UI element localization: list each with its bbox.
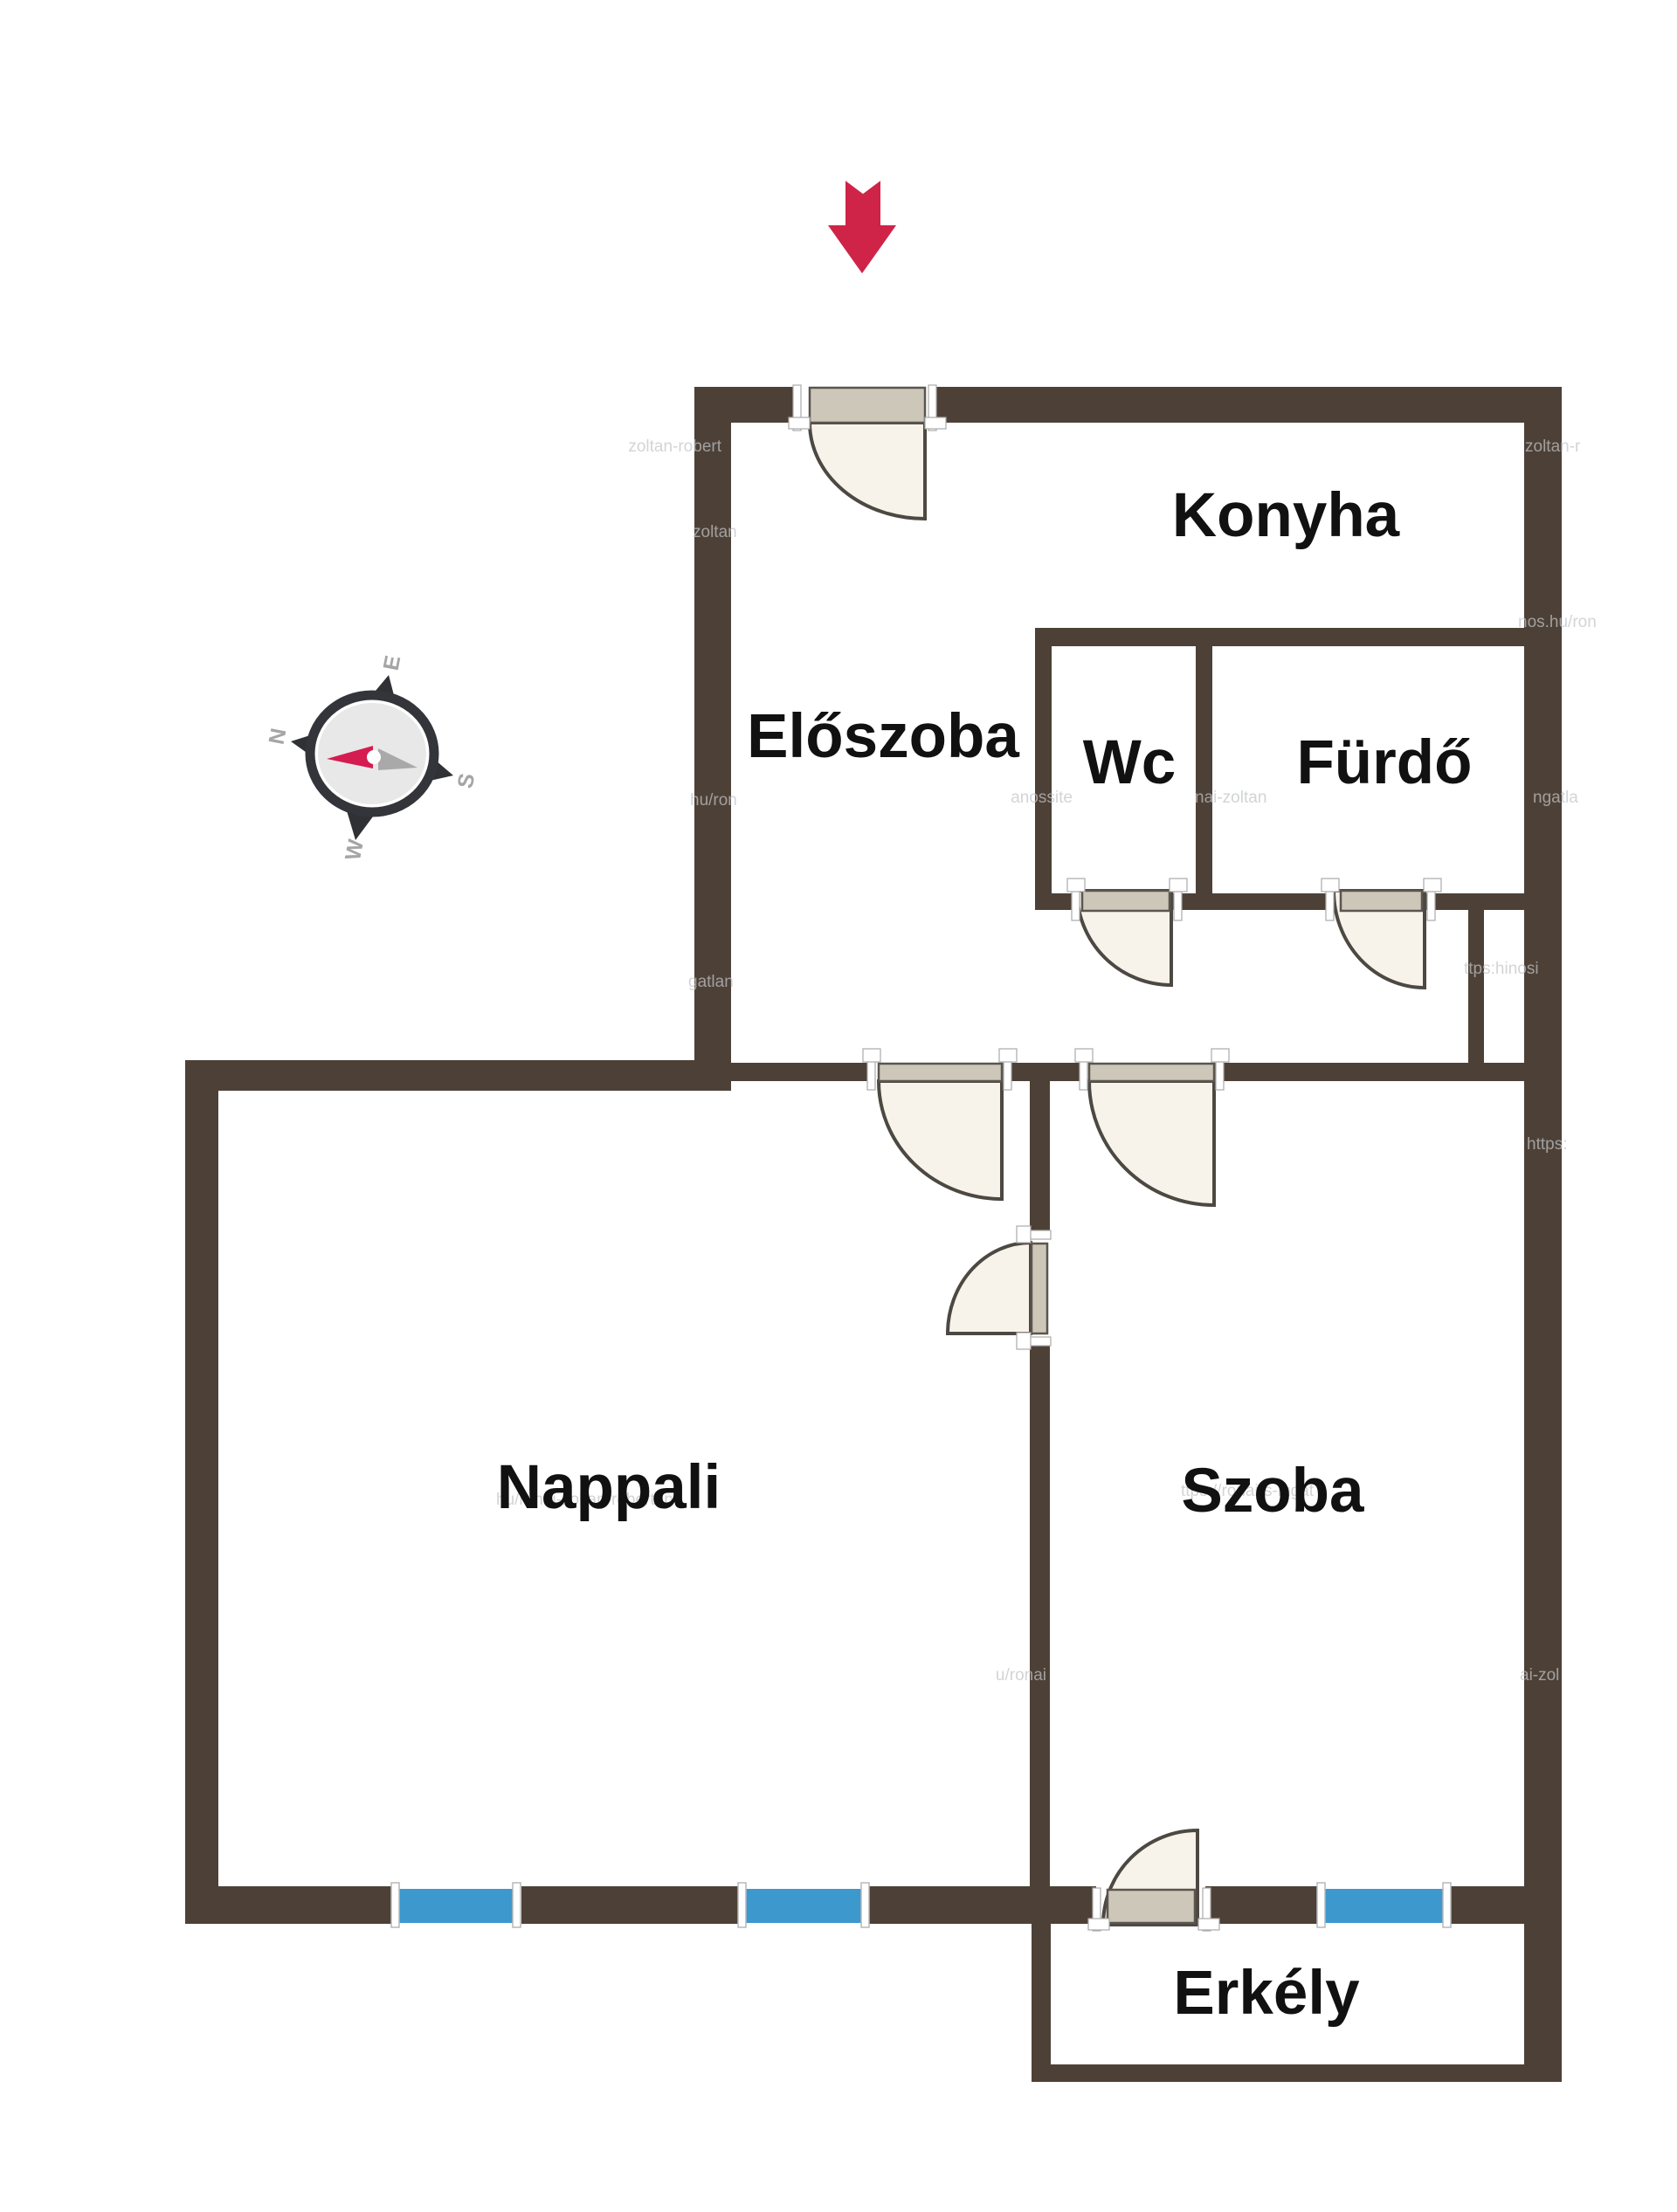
svg-text:nos.hu/ron: nos.hu/ron <box>1518 613 1597 631</box>
svg-text:Nappali: Nappali <box>497 1453 721 1522</box>
svg-text:gatlan: gatlan <box>688 973 734 991</box>
svg-text:zoltan-robert: zoltan-robert <box>628 438 721 456</box>
svg-text:zoltan: zoltan <box>693 523 737 541</box>
svg-text:Konyha: Konyha <box>1172 481 1400 550</box>
svg-text:zoltan-r: zoltan-r <box>1525 438 1581 456</box>
svg-text:ai-zol: ai-zol <box>1520 1666 1559 1685</box>
svg-text:u/ronai: u/ronai <box>996 1666 1046 1685</box>
svg-text:Wc: Wc <box>1083 728 1177 797</box>
svg-text:Szoba: Szoba <box>1181 1457 1364 1526</box>
svg-text:Fürdő: Fürdő <box>1296 728 1472 797</box>
svg-text:ttps:hinosi: ttps:hinosi <box>1464 960 1539 978</box>
svg-text:Előszoba: Előszoba <box>747 702 1019 771</box>
svg-text:anossite: anossite <box>1011 789 1073 807</box>
svg-text:https:: https: <box>1527 1135 1567 1154</box>
svg-text:ngatla: ngatla <box>1533 789 1578 807</box>
svg-text:nai-zoltan: nai-zoltan <box>1195 789 1266 807</box>
svg-text:hu/ron: hu/ron <box>690 791 737 810</box>
svg-text:Erkély: Erkély <box>1173 1959 1360 2028</box>
